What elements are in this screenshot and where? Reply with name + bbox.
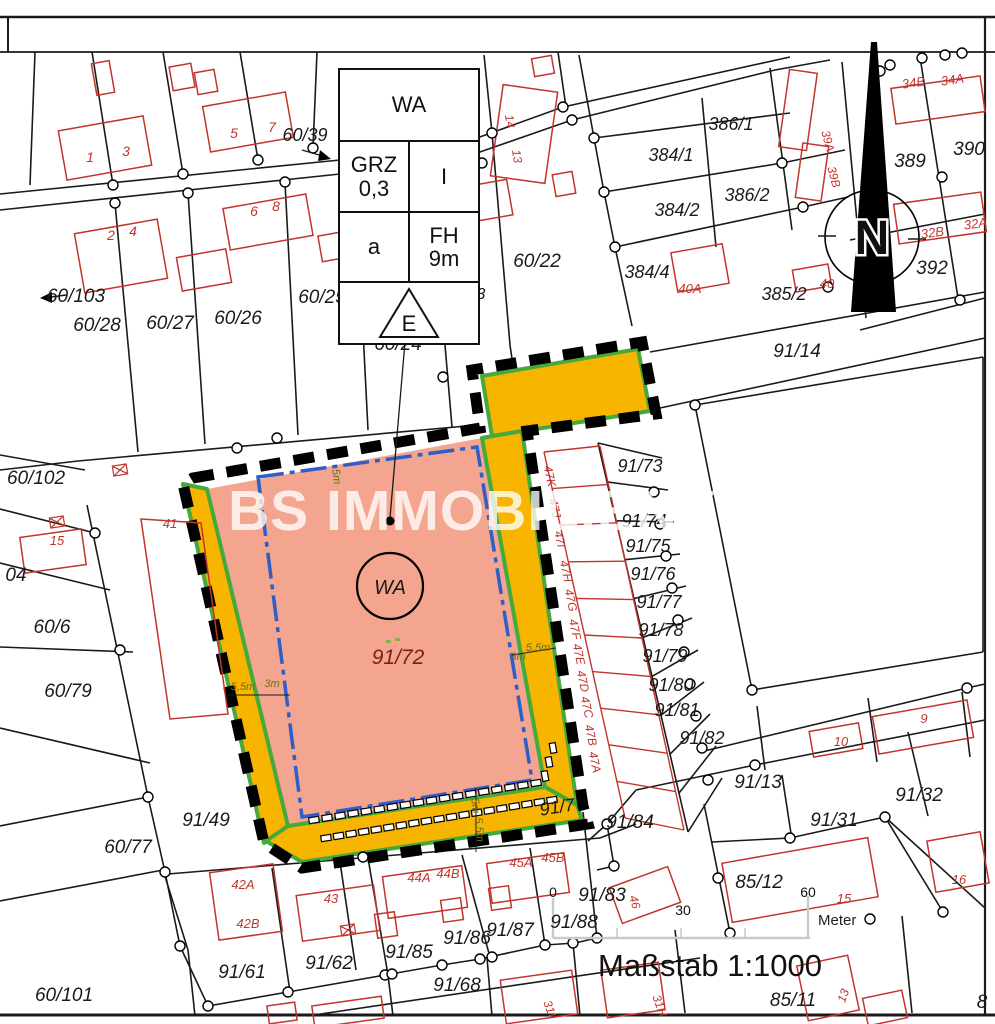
legend-triangle-icon: E — [374, 285, 444, 341]
parcel-label: 3m — [510, 651, 525, 663]
parcel-label: 47H — [557, 559, 575, 584]
parcel-label: 60/22 — [513, 251, 561, 272]
parcel-label: 14 — [502, 114, 518, 130]
scalebar-tick-label: 0 — [549, 884, 557, 900]
parcel-label: 91/87 — [486, 920, 535, 941]
parcel-label: 91/83 — [578, 885, 626, 906]
parcel-label: 4 — [129, 223, 137, 239]
parcel-label: 91/75 — [625, 536, 671, 556]
parcel-label: 15 — [837, 891, 852, 906]
parcel-label: 91/79 — [642, 646, 687, 666]
parcel-label: 91/49 — [182, 810, 230, 831]
parcel-label: 5 — [230, 125, 238, 141]
parcel-label: 91/32 — [895, 785, 943, 806]
parcel-label: 91/72 — [372, 646, 425, 669]
parcel-label: 9 — [920, 711, 927, 726]
cadastral-map-page: N60/391357246860/10360/2860/2760/2660/25… — [0, 0, 995, 1024]
parcel-label: 5,5m — [526, 642, 550, 654]
parcel-label: 6 — [250, 203, 258, 219]
parcel-label: 42B — [236, 916, 259, 931]
parcel-label: 91/13 — [734, 772, 782, 793]
parcel-label: 60/27 — [146, 313, 195, 334]
scalebar-tick-label: 60 — [800, 884, 816, 900]
cadastral-map-canvas: N60/391357246860/10360/2860/2760/2660/25… — [0, 0, 995, 1024]
parcel-label: 2 — [106, 227, 115, 243]
legend-row-grz: GRZ 0,3 I — [340, 142, 478, 213]
parcel-label: 5,5m — [472, 817, 486, 842]
parcel-label: 60/39 — [282, 125, 327, 145]
parcel-label: 91/88 — [550, 912, 598, 933]
parcel-label: 47A — [586, 750, 604, 774]
parcel-label: 5,5m — [231, 681, 255, 693]
parcel-label: 45B — [541, 850, 564, 865]
parcel-label: 91/80 — [648, 675, 693, 695]
legend-row-erschliessung: E — [340, 283, 478, 343]
parcel-label: 384/4 — [624, 262, 669, 282]
parcel-label: 7 — [268, 119, 277, 135]
parcel-label: 32A — [963, 215, 988, 233]
legend-fh-value: 9m — [429, 247, 460, 270]
parcel-label: 04 — [5, 565, 26, 586]
legend-row-wa: WA — [340, 70, 478, 142]
parcel-label: 44A — [407, 870, 430, 885]
parcel-label: 44B — [436, 866, 459, 881]
parcel-label: 3 — [122, 143, 130, 159]
parcel-label: 384/1 — [648, 145, 693, 165]
parcel-label: 386/2 — [724, 185, 769, 205]
parcel-label: 384/2 — [654, 200, 699, 220]
scalebar-unit-label: Meter — [818, 912, 856, 929]
parcel-label: 91/73 — [617, 456, 662, 476]
svg-text:N: N — [855, 212, 890, 265]
parcel-label: 47E — [570, 642, 588, 667]
parcel-label: 39B — [824, 165, 843, 189]
parcel-label: 5m — [468, 798, 481, 814]
parcel-label: 47B — [582, 723, 600, 747]
parcel-label: 85/11 — [770, 990, 816, 1011]
parcel-label: 47G — [562, 588, 580, 613]
parcel-label: 60/101 — [35, 985, 93, 1006]
parcel-label: 40A — [678, 281, 701, 296]
legend-wa-label: WA — [340, 70, 478, 140]
parcel-label: 60/102 — [7, 468, 66, 489]
parcel-label: 386/1 — [708, 114, 753, 134]
zoning-legend-box: WA GRZ 0,3 I a FH 9m E — [338, 68, 480, 345]
parcel-label: 91/76 — [630, 564, 676, 584]
parcel-label: 42A — [231, 877, 254, 892]
parcel-label: 43 — [324, 891, 339, 906]
parcel-label: 91/78 — [638, 620, 683, 640]
parcel-label: 91/61 — [218, 962, 266, 983]
parcel-label: 60/79 — [44, 681, 92, 702]
parcel-label: 91/85 — [385, 942, 433, 963]
parcel-label: WA — [374, 577, 406, 599]
legend-grz-label: GRZ — [351, 153, 397, 176]
parcel-label: 46 — [626, 894, 643, 911]
parcel-label: 91/14 — [773, 341, 821, 362]
parcel-label: 91/82 — [679, 728, 724, 748]
parcel-label: 15 — [50, 533, 65, 548]
parcel-label: 39A — [818, 129, 837, 153]
parcel-label: 32B — [920, 223, 945, 241]
parcel-label: 91/68 — [433, 975, 481, 996]
parcel-label: 47I — [551, 530, 568, 550]
parcel-label: 60/6 — [34, 617, 71, 638]
parcel-label: 34B — [901, 73, 926, 91]
parcel-label: 13 — [509, 149, 525, 165]
legend-grz-value: 0,3 — [359, 177, 390, 200]
legend-floors-cell: I — [408, 142, 478, 211]
parcel-label: 10 — [834, 734, 849, 749]
parcel-label: 60/28 — [73, 315, 121, 336]
legend-fh-label: FH — [429, 224, 458, 247]
parcel-label: 45A — [509, 855, 532, 870]
parcel-label: 91/86 — [443, 928, 491, 949]
parcel-label: 91/74 — [621, 511, 666, 531]
parcel-label: 40 — [820, 276, 835, 291]
parcel-label: 8 — [977, 992, 988, 1013]
legend-fh-cell: FH 9m — [408, 213, 478, 281]
legend-bauweise-cell: a — [340, 213, 408, 281]
parcel-label: 91/62 — [305, 953, 353, 974]
parcel-label: 47J — [546, 497, 564, 520]
parcel-label: 47D — [574, 669, 592, 694]
parcel-label: 91/31 — [810, 810, 858, 831]
parcel-label: 47F — [566, 618, 584, 642]
parcel-label: 392 — [916, 258, 948, 279]
map-scale-text: Maßstab 1:1000 — [598, 948, 822, 984]
parcel-label: 91/84 — [606, 812, 654, 833]
parcel-label: 47C — [578, 695, 596, 720]
legend-row-bauweise: a FH 9m — [340, 213, 478, 283]
parcel-label: 1 — [86, 149, 94, 165]
legend-grz-cell: GRZ 0,3 — [340, 142, 408, 211]
parcel-label: 390 — [953, 139, 985, 160]
parcel-label: 85/12 — [735, 872, 783, 893]
parcel-label: 60/77 — [104, 837, 153, 858]
parcel-label: 47K — [541, 464, 559, 489]
parcel-label: 34A — [940, 71, 965, 89]
parcel-label: 91/81 — [654, 700, 699, 720]
parcel-label: 91/77 — [636, 592, 682, 612]
parcel-label: 5m — [329, 468, 343, 485]
parcel-label: 41 — [163, 516, 177, 531]
parcel-label: 60/103 — [47, 286, 106, 307]
parcel-label: 8 — [272, 198, 280, 214]
parcel-label: 13 — [834, 987, 852, 1005]
parcel-label: 16 — [952, 872, 967, 887]
parcel-label: 389 — [894, 151, 926, 172]
scalebar-tick-label: 30 — [675, 902, 691, 918]
svg-text:E: E — [402, 311, 417, 336]
parcel-label: 385/2 — [761, 284, 806, 304]
parcel-label: 60/26 — [214, 308, 262, 329]
parcel-label: 3m — [264, 678, 279, 690]
